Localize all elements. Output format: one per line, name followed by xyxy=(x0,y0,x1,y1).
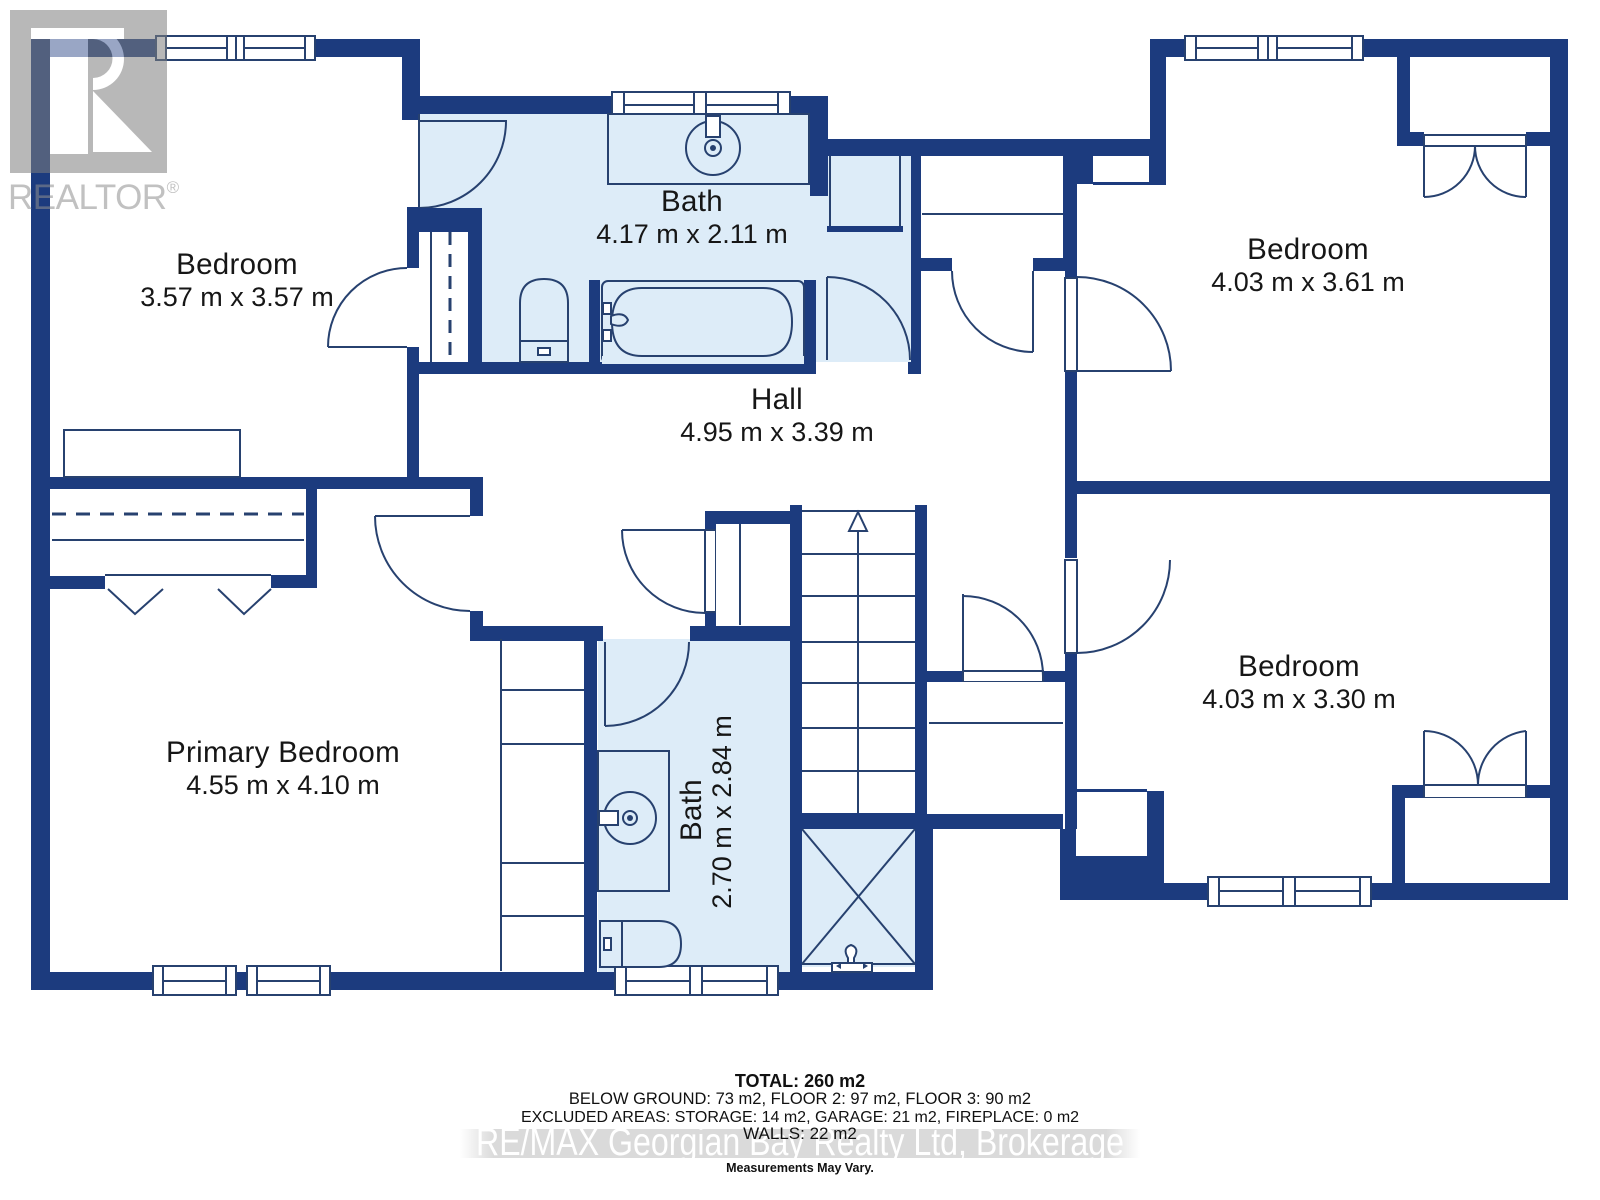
svg-text:Measurements May Vary.: Measurements May Vary. xyxy=(726,1161,874,1175)
svg-text:4.03 m x 3.30 m: 4.03 m x 3.30 m xyxy=(1202,684,1396,714)
svg-text:Bedroom: Bedroom xyxy=(1247,233,1369,266)
svg-text:2.70 m x 2.84 m: 2.70 m x 2.84 m xyxy=(707,715,737,909)
svg-text:Bath: Bath xyxy=(675,779,708,841)
svg-text:4.03 m x 3.61 m: 4.03 m x 3.61 m xyxy=(1211,267,1405,297)
svg-text:WALLS: 22 m2: WALLS: 22 m2 xyxy=(743,1124,857,1143)
svg-text:4.55 m x 4.10 m: 4.55 m x 4.10 m xyxy=(186,770,380,800)
svg-text:Bedroom: Bedroom xyxy=(176,248,298,281)
svg-text:Primary Bedroom: Primary Bedroom xyxy=(166,736,400,769)
svg-text:3.57 m x 3.57 m: 3.57 m x 3.57 m xyxy=(140,282,334,312)
svg-text:BELOW GROUND: 73 m2, FLOOR 2:: BELOW GROUND: 73 m2, FLOOR 2: 97 m2, FLO… xyxy=(569,1090,1031,1108)
svg-text:Bedroom: Bedroom xyxy=(1238,650,1360,683)
svg-text:TOTAL: 260 m2: TOTAL: 260 m2 xyxy=(735,1071,865,1091)
svg-text:REALTOR®: REALTOR® xyxy=(8,178,180,217)
svg-text:Bath: Bath xyxy=(661,185,723,218)
svg-text:Hall: Hall xyxy=(751,383,803,416)
svg-text:4.95 m x 3.39 m: 4.95 m x 3.39 m xyxy=(680,417,874,447)
svg-text:4.17 m x 2.11 m: 4.17 m x 2.11 m xyxy=(596,219,788,249)
